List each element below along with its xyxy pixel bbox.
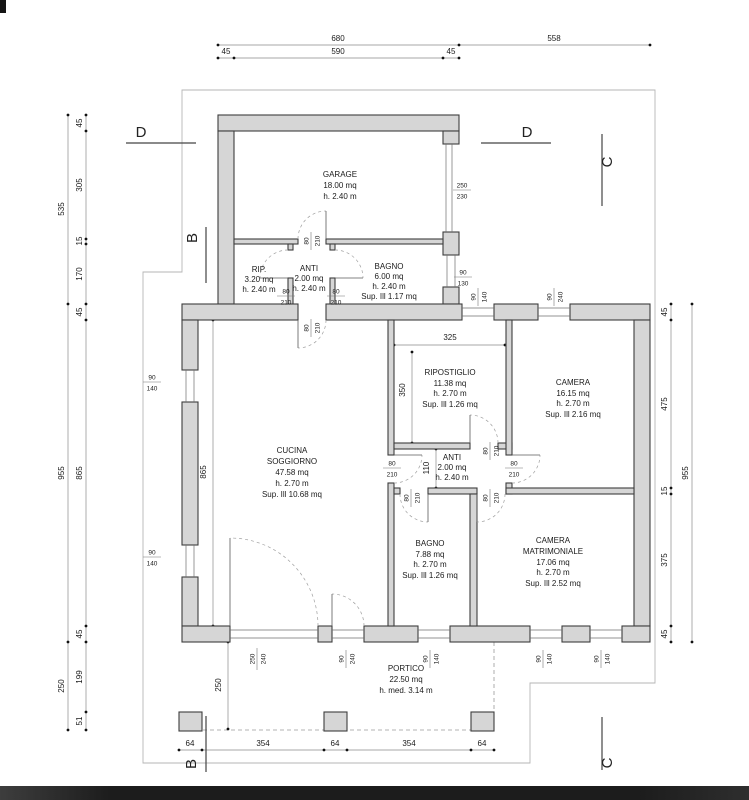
dim-558: 558	[547, 34, 561, 43]
wall-segment	[234, 239, 298, 244]
room-sup: Sup. Ill 1.26 mq	[402, 571, 458, 580]
opening-width: 80	[304, 324, 311, 332]
wall-segment	[506, 488, 634, 494]
wall-segment	[388, 483, 394, 626]
opening-height: 140	[147, 561, 158, 568]
room-height: h. 2.70 m	[413, 560, 447, 569]
opening-height: 210	[494, 492, 501, 503]
wall-segment	[443, 232, 459, 255]
wall-segment	[443, 131, 459, 144]
dim-955: 955	[57, 466, 66, 480]
room-name-2: SOGGIORNO	[267, 457, 317, 466]
dim-680: 680	[331, 34, 345, 43]
room-name-2: MATRIMONIALE	[523, 547, 583, 556]
dim-45: 45	[447, 47, 456, 56]
room-height: h. 2.70 m	[536, 568, 570, 577]
room-area: 17.06 mq	[536, 558, 569, 567]
room-name: ANTI	[300, 264, 318, 273]
wall-segment	[182, 577, 198, 626]
dim-45: 45	[75, 118, 84, 127]
room-label-garage: GARAGE 18.00 mq h. 2.40 m	[323, 170, 357, 201]
wall-segment	[443, 287, 459, 304]
opening-height: 140	[482, 291, 489, 302]
opening-height: 210	[509, 472, 520, 479]
opening-width: 90	[536, 655, 543, 663]
dim-45: 45	[75, 307, 84, 316]
room-name: RIPOSTIGLIO	[424, 368, 475, 377]
dim-955: 955	[681, 466, 690, 480]
dim-64: 64	[186, 739, 195, 748]
opening-height: 210	[281, 300, 292, 307]
room-height: h. 2.70 m	[433, 389, 467, 398]
room-name: BAGNO	[375, 262, 404, 271]
dim-199: 199	[75, 670, 84, 684]
opening-height: 210	[315, 235, 322, 246]
dim-865-interior: 865	[199, 465, 208, 479]
room-height: h. 2.70 m	[275, 479, 309, 488]
dim-64: 64	[331, 739, 340, 748]
room-area: 11.38 mq	[434, 379, 467, 388]
corner-mark	[0, 0, 6, 13]
room-area: 3.20 mq	[245, 275, 274, 284]
opening-width: 80	[282, 289, 290, 296]
dim-535: 535	[57, 202, 66, 216]
wall-segment	[218, 115, 459, 131]
dim-354: 354	[256, 739, 270, 748]
portico-pillar	[324, 712, 347, 731]
section-label-d-right: D	[522, 124, 533, 141]
wall-segment	[394, 443, 470, 449]
room-sup: Sup. Ill 2.16 mq	[545, 410, 601, 419]
opening-height: 140	[547, 653, 554, 664]
opening-width: 90	[547, 293, 554, 301]
opening-width: 80	[510, 461, 518, 468]
room-name: PORTICO	[388, 664, 424, 673]
dim-250: 250	[57, 679, 66, 693]
wall-segment	[428, 488, 477, 494]
room-name: BAGNO	[416, 539, 445, 548]
dim-45: 45	[660, 307, 669, 316]
opening-height: 140	[434, 653, 441, 664]
dim-45: 45	[222, 47, 231, 56]
opening-height: 140	[605, 653, 612, 664]
opening-width: 250	[250, 653, 257, 664]
opening-height: 210	[415, 492, 422, 503]
room-height: h. 2.40 m	[242, 285, 276, 294]
wall-segment	[394, 488, 400, 494]
opening-width: 90	[423, 655, 430, 663]
opening-height: 240	[350, 653, 357, 664]
dim-51: 51	[75, 716, 84, 725]
wall-segment	[506, 320, 512, 455]
dim-305: 305	[75, 178, 84, 192]
wall-segment	[570, 304, 650, 320]
opening-height: 210	[331, 300, 342, 307]
wall-segment	[326, 239, 443, 244]
wall-segment	[450, 626, 530, 642]
opening-width: 80	[483, 494, 490, 502]
dim-375: 375	[660, 553, 669, 567]
opening-height: 240	[558, 291, 565, 302]
room-area: 47.58 mq	[275, 468, 308, 477]
opening-width: 90	[594, 655, 601, 663]
room-height: h. 2.40 m	[435, 473, 469, 482]
dim-325: 325	[443, 333, 457, 342]
section-label-b-top: B	[184, 233, 201, 243]
section-label-b-bottom: B	[183, 759, 200, 769]
dim-110: 110	[422, 461, 431, 474]
room-height: h. med. 3.14 m	[379, 686, 433, 695]
section-label-c-top: C	[599, 156, 616, 167]
wall-segment	[318, 626, 332, 642]
room-name: RIP.	[252, 265, 267, 274]
floor-plan-page: 680 558 45 590 45 535 955 250 45 305 15 …	[0, 0, 749, 800]
floor-plan-drawing: 680 558 45 590 45 535 955 250 45 305 15 …	[0, 0, 749, 800]
dim-354: 354	[402, 739, 416, 748]
opening-height: 210	[494, 445, 501, 456]
wall-segment	[562, 626, 590, 642]
dim-170: 170	[75, 267, 84, 281]
dim-590: 590	[331, 47, 345, 56]
wall-segment	[288, 244, 293, 250]
room-height: h. 2.40 m	[372, 282, 406, 291]
wall-segment	[218, 131, 234, 304]
room-name: GARAGE	[323, 170, 357, 179]
room-height: h. 2.40 m	[292, 284, 326, 293]
room-area: 18.00 mq	[323, 181, 356, 190]
room-area: 16.15 mq	[556, 389, 589, 398]
opening-width: 90	[148, 375, 156, 382]
section-label-c-bottom: C	[599, 757, 616, 768]
wall-segment	[364, 626, 418, 642]
wall-segment	[494, 304, 538, 320]
opening-height: 210	[387, 472, 398, 479]
dim-45: 45	[75, 629, 84, 638]
dim-350: 350	[398, 383, 407, 397]
room-sup: Sup. Ill 10.68 mq	[262, 490, 322, 499]
dim-15: 15	[75, 236, 84, 245]
dim-865: 865	[75, 466, 84, 480]
dim-15: 15	[660, 486, 669, 495]
wall-segment	[182, 402, 198, 545]
wall-segment	[470, 494, 477, 626]
dim-250-portico: 250	[214, 678, 223, 692]
opening-width: 90	[471, 293, 478, 301]
opening-height: 240	[261, 653, 268, 664]
opening-height: 230	[457, 194, 468, 201]
wall-segment	[634, 320, 650, 626]
room-sup: Sup. Ill 2.52 mq	[525, 579, 581, 588]
room-sup: Sup. Ill 1.26 mq	[422, 400, 478, 409]
dim-45: 45	[660, 629, 669, 638]
room-name: ANTI	[443, 453, 461, 462]
wall-segment	[388, 320, 394, 455]
opening-width: 80	[304, 237, 311, 245]
opening-height: 210	[315, 322, 322, 333]
opening-width: 80	[332, 289, 340, 296]
opening-width: 90	[148, 550, 156, 557]
room-height: h. 2.70 m	[556, 399, 590, 408]
room-name: CAMERA	[556, 378, 591, 387]
room-area: 2.00 mq	[295, 274, 324, 283]
wall-segment	[182, 626, 230, 642]
portico-pillar	[179, 712, 202, 731]
opening-height: 140	[147, 386, 158, 393]
room-name: CUCINA	[277, 446, 308, 455]
dim-64: 64	[478, 739, 487, 748]
room-sup: Sup. Ill 1.17 mq	[361, 292, 417, 301]
footer-bar	[0, 786, 749, 800]
opening-width: 80	[388, 461, 396, 468]
room-area: 6.00 mq	[375, 272, 404, 281]
room-area: 22.50 mq	[389, 675, 422, 684]
opening-width: 90	[339, 655, 346, 663]
opening-width: 80	[483, 447, 490, 455]
opening-width: 90	[459, 270, 467, 277]
opening-height: 130	[458, 281, 469, 288]
room-area: 2.00 mq	[438, 463, 467, 472]
wall-segment	[326, 304, 462, 320]
wall-segment	[622, 626, 650, 642]
room-height: h. 2.40 m	[323, 192, 357, 201]
dim-475: 475	[660, 397, 669, 411]
portico-pillar	[471, 712, 494, 731]
wall-segment	[330, 244, 335, 250]
wall-segment	[182, 320, 198, 370]
opening-width: 80	[404, 494, 411, 502]
room-name: CAMERA	[536, 536, 571, 545]
section-label-d-left: D	[136, 124, 147, 141]
opening-width: 250	[457, 183, 468, 190]
room-area: 7.88 mq	[416, 550, 445, 559]
